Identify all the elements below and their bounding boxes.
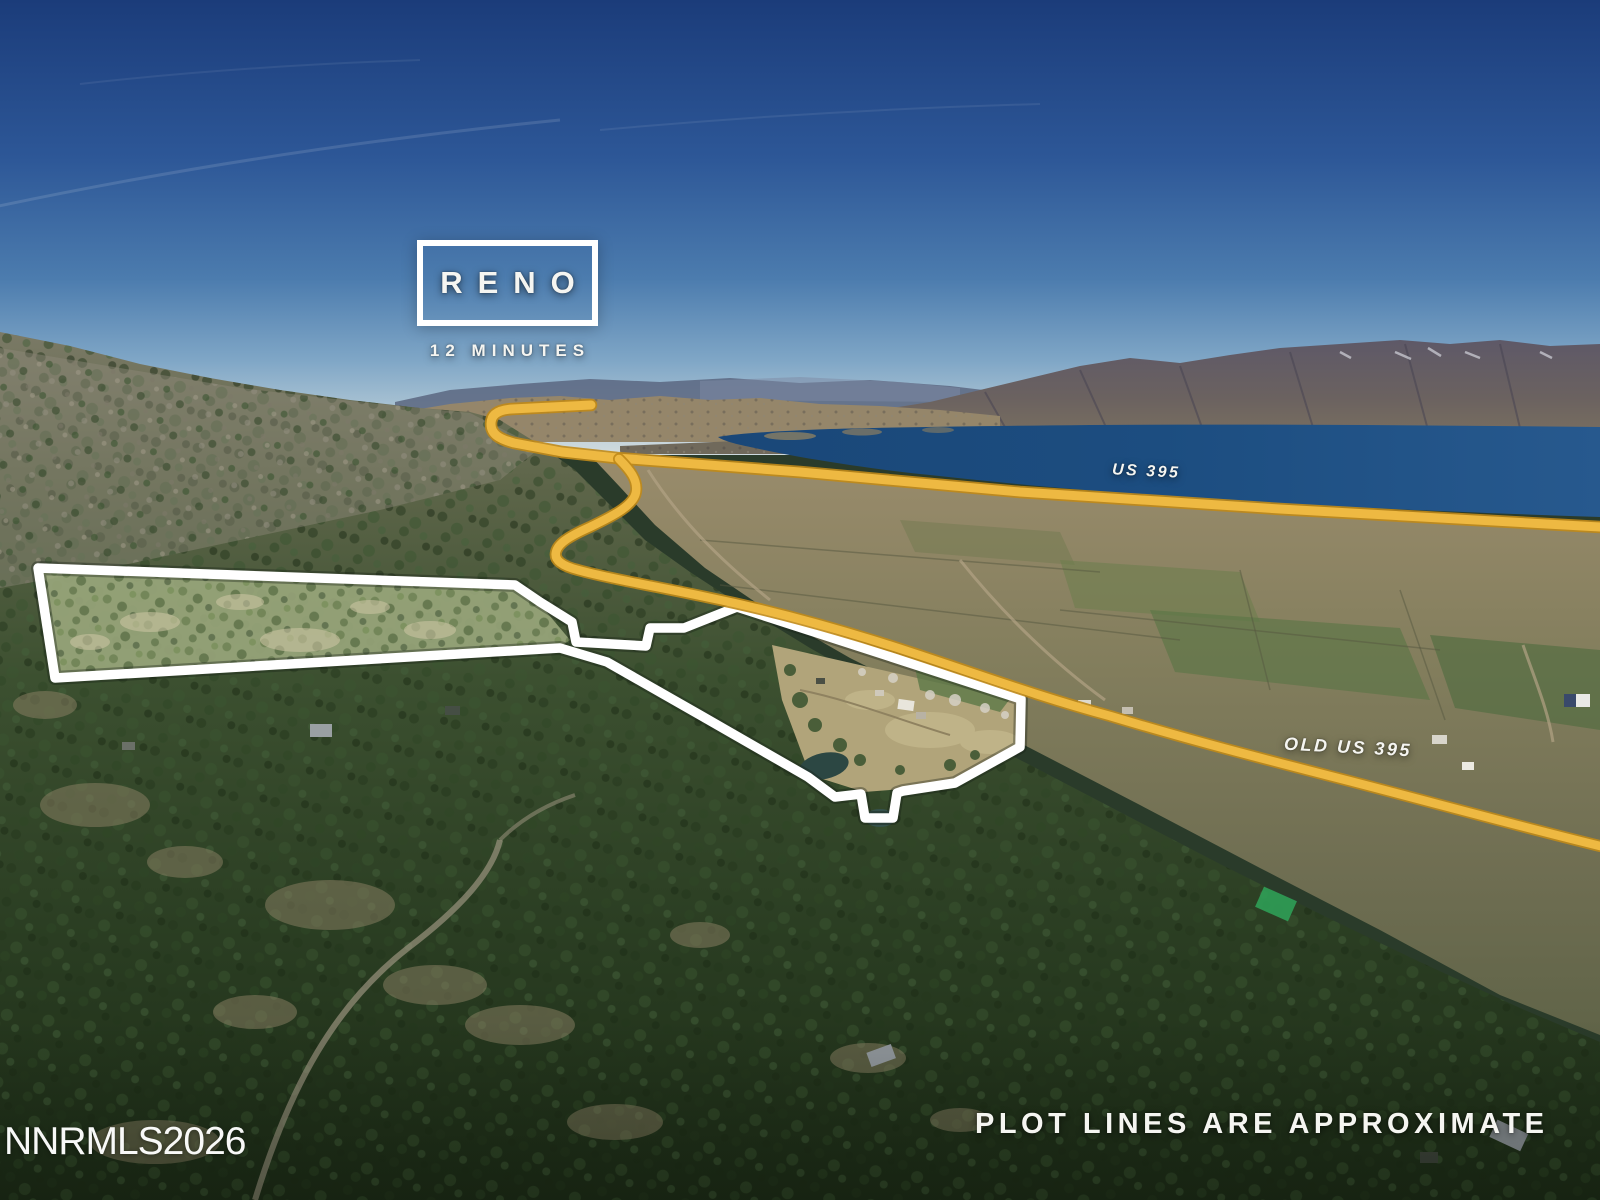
marsh-islet — [764, 432, 816, 440]
reno-callout-title: RENO — [425, 265, 590, 301]
marsh-islet — [842, 429, 882, 436]
reno-callout-box: RENO — [417, 240, 598, 326]
marsh-islet — [922, 427, 954, 433]
mls-watermark: NNRMLS2026 — [4, 1120, 245, 1164]
reno-callout-subtitle: 12 MINUTES — [404, 341, 610, 361]
plot-lines-disclaimer: PLOT LINES ARE APPROXIMATE — [975, 1108, 1549, 1141]
us-395-label: US 395 — [1112, 461, 1181, 483]
terrain-illustration — [0, 0, 1600, 1200]
aerial-photo: RENO 12 MINUTES US 395 OLD US 395 PLOT L… — [0, 0, 1600, 1200]
